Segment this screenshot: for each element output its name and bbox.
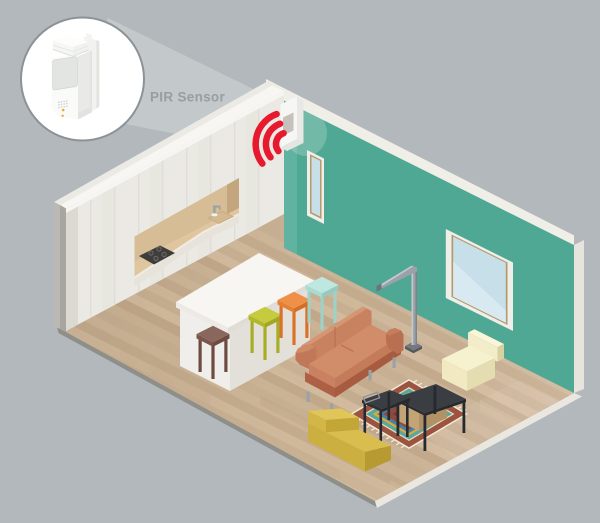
svg-text:PIR Sensor: PIR Sensor (150, 90, 225, 105)
